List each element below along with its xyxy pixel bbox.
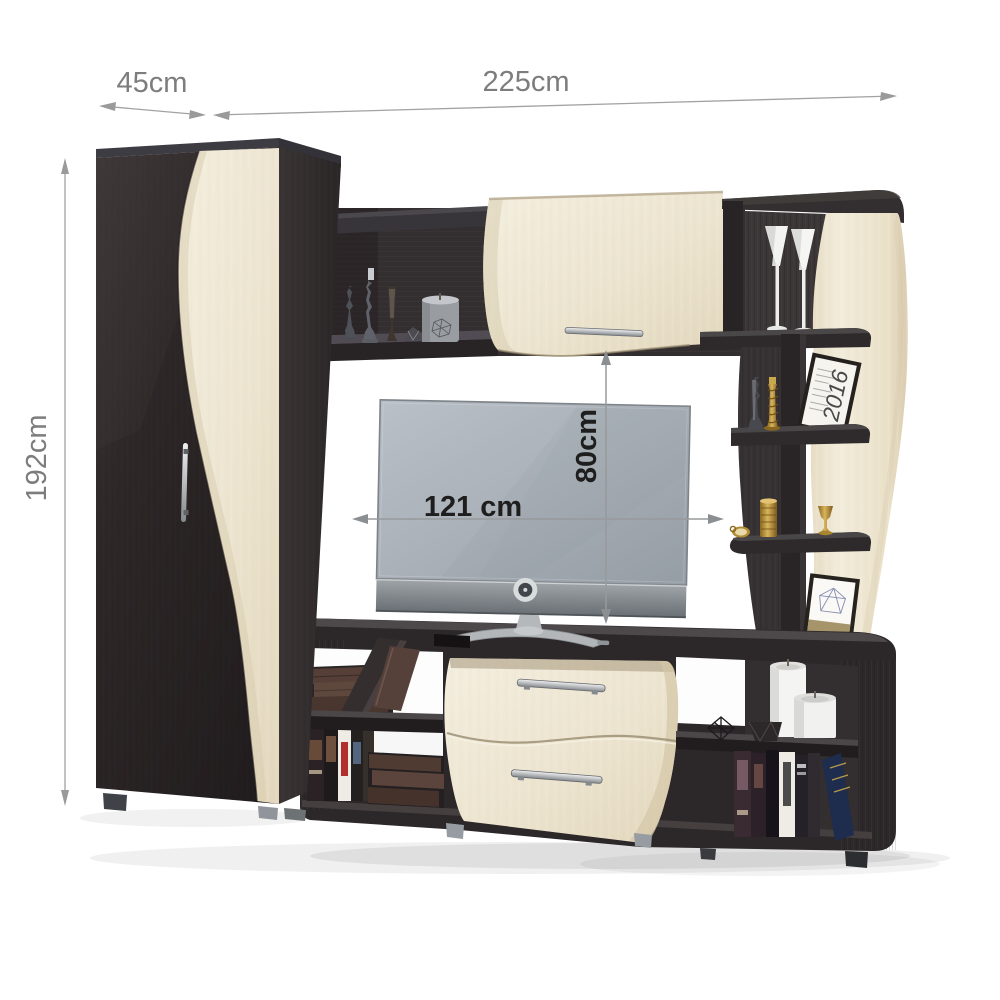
svg-text:192cm: 192cm bbox=[21, 414, 53, 501]
svg-text:121 cm: 121 cm bbox=[424, 491, 522, 523]
svg-text:225cm: 225cm bbox=[482, 66, 569, 98]
svg-text:80cm: 80cm bbox=[571, 409, 603, 483]
svg-text:45cm: 45cm bbox=[117, 67, 188, 99]
